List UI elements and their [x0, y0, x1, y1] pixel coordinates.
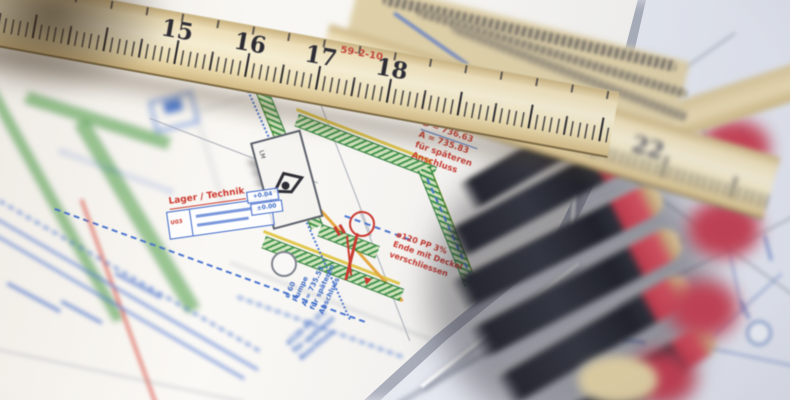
photo-ruler-on-blueprint: LM Lager / Technik U03 +0.04 ±0.00 ø 60	[0, 0, 790, 400]
tone-overlay	[0, 0, 790, 400]
